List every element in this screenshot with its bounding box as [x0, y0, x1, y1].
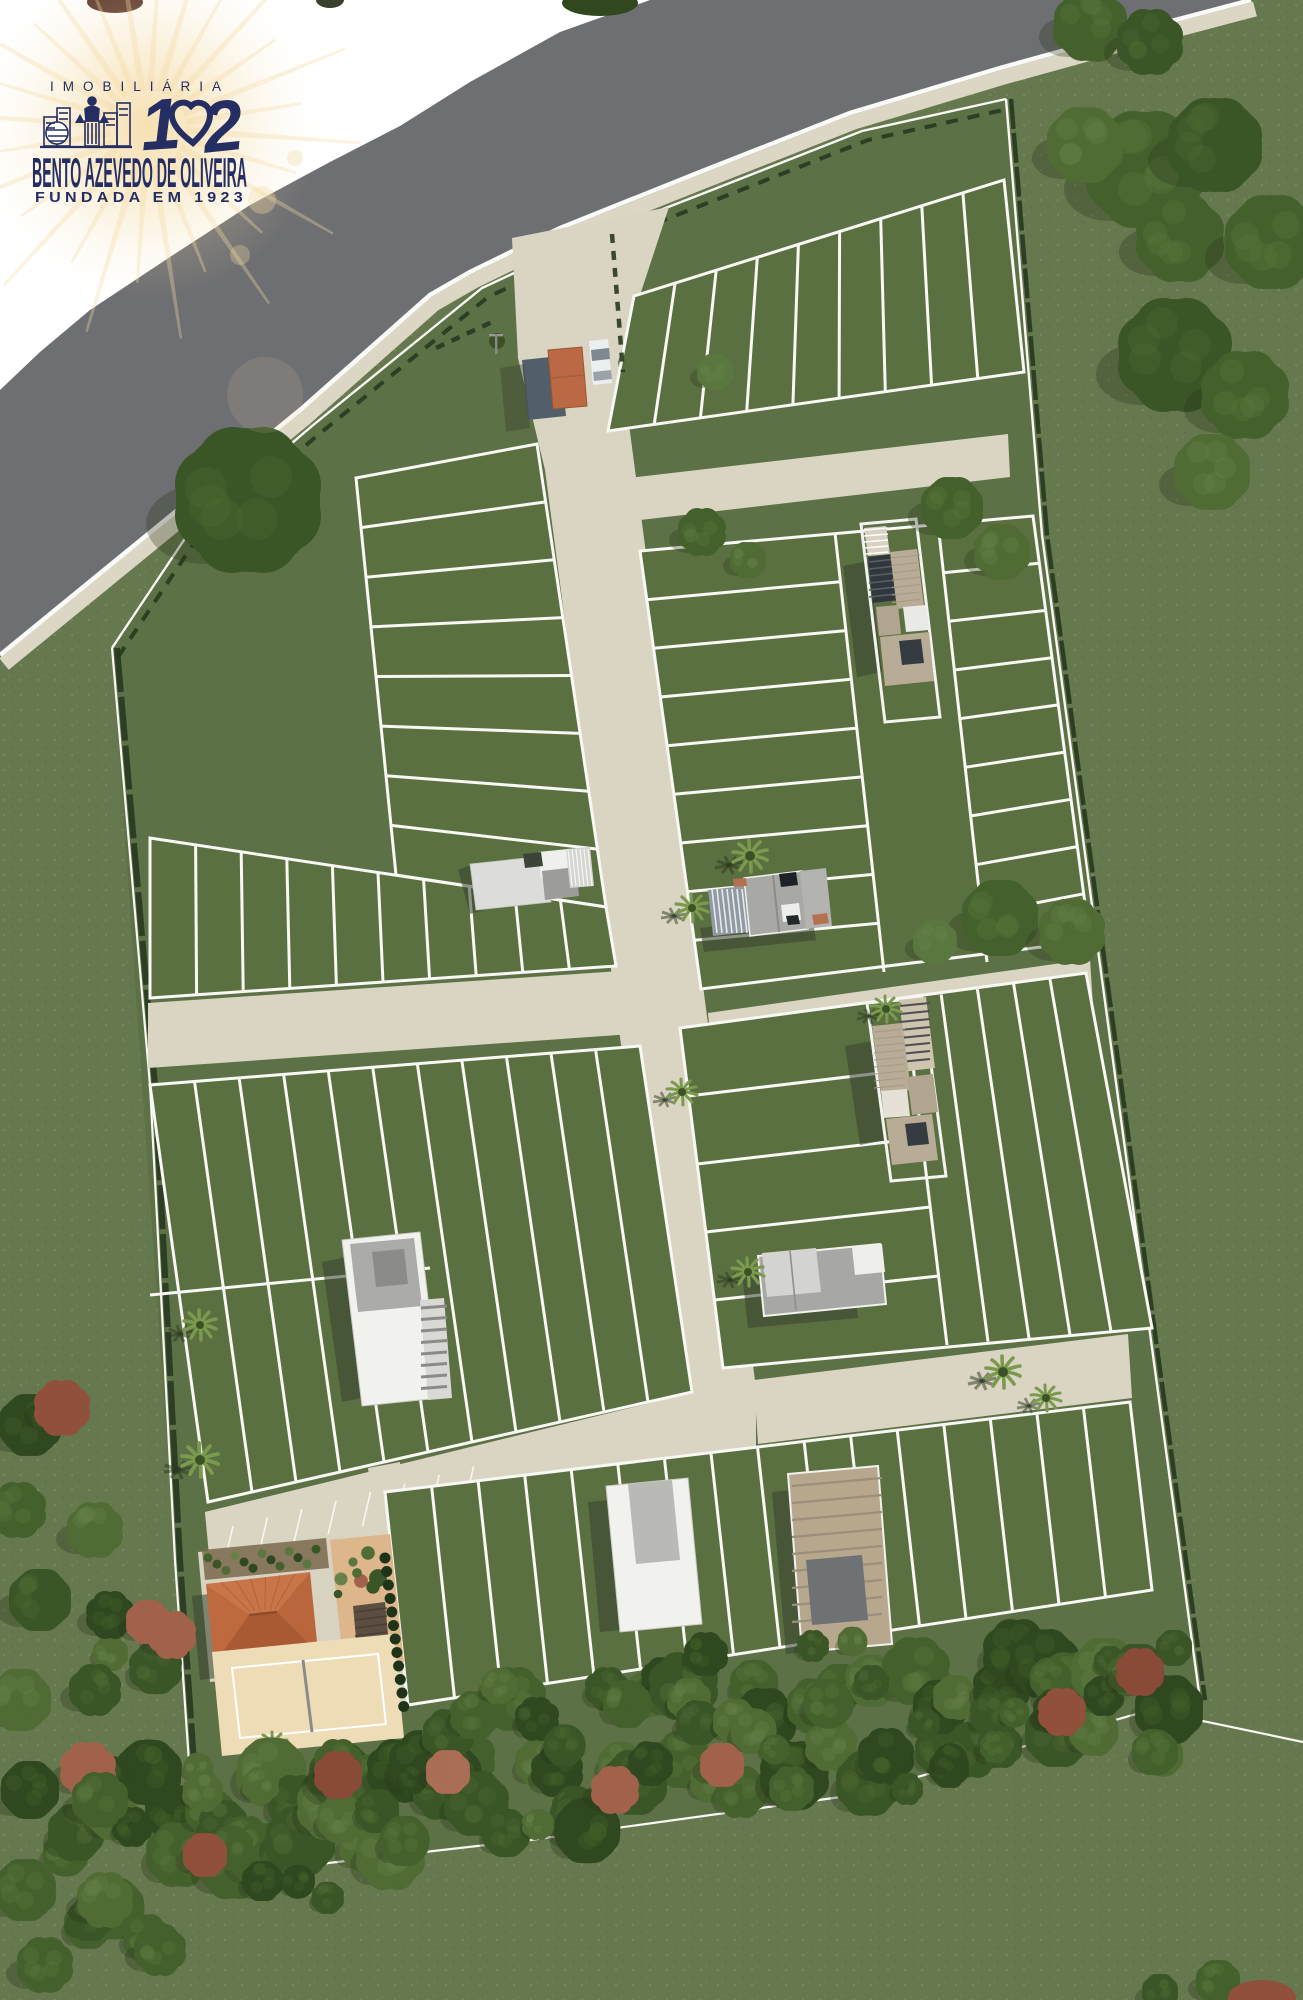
svg-text:FUNDADA EM 1923: FUNDADA EM 1923	[35, 189, 247, 206]
